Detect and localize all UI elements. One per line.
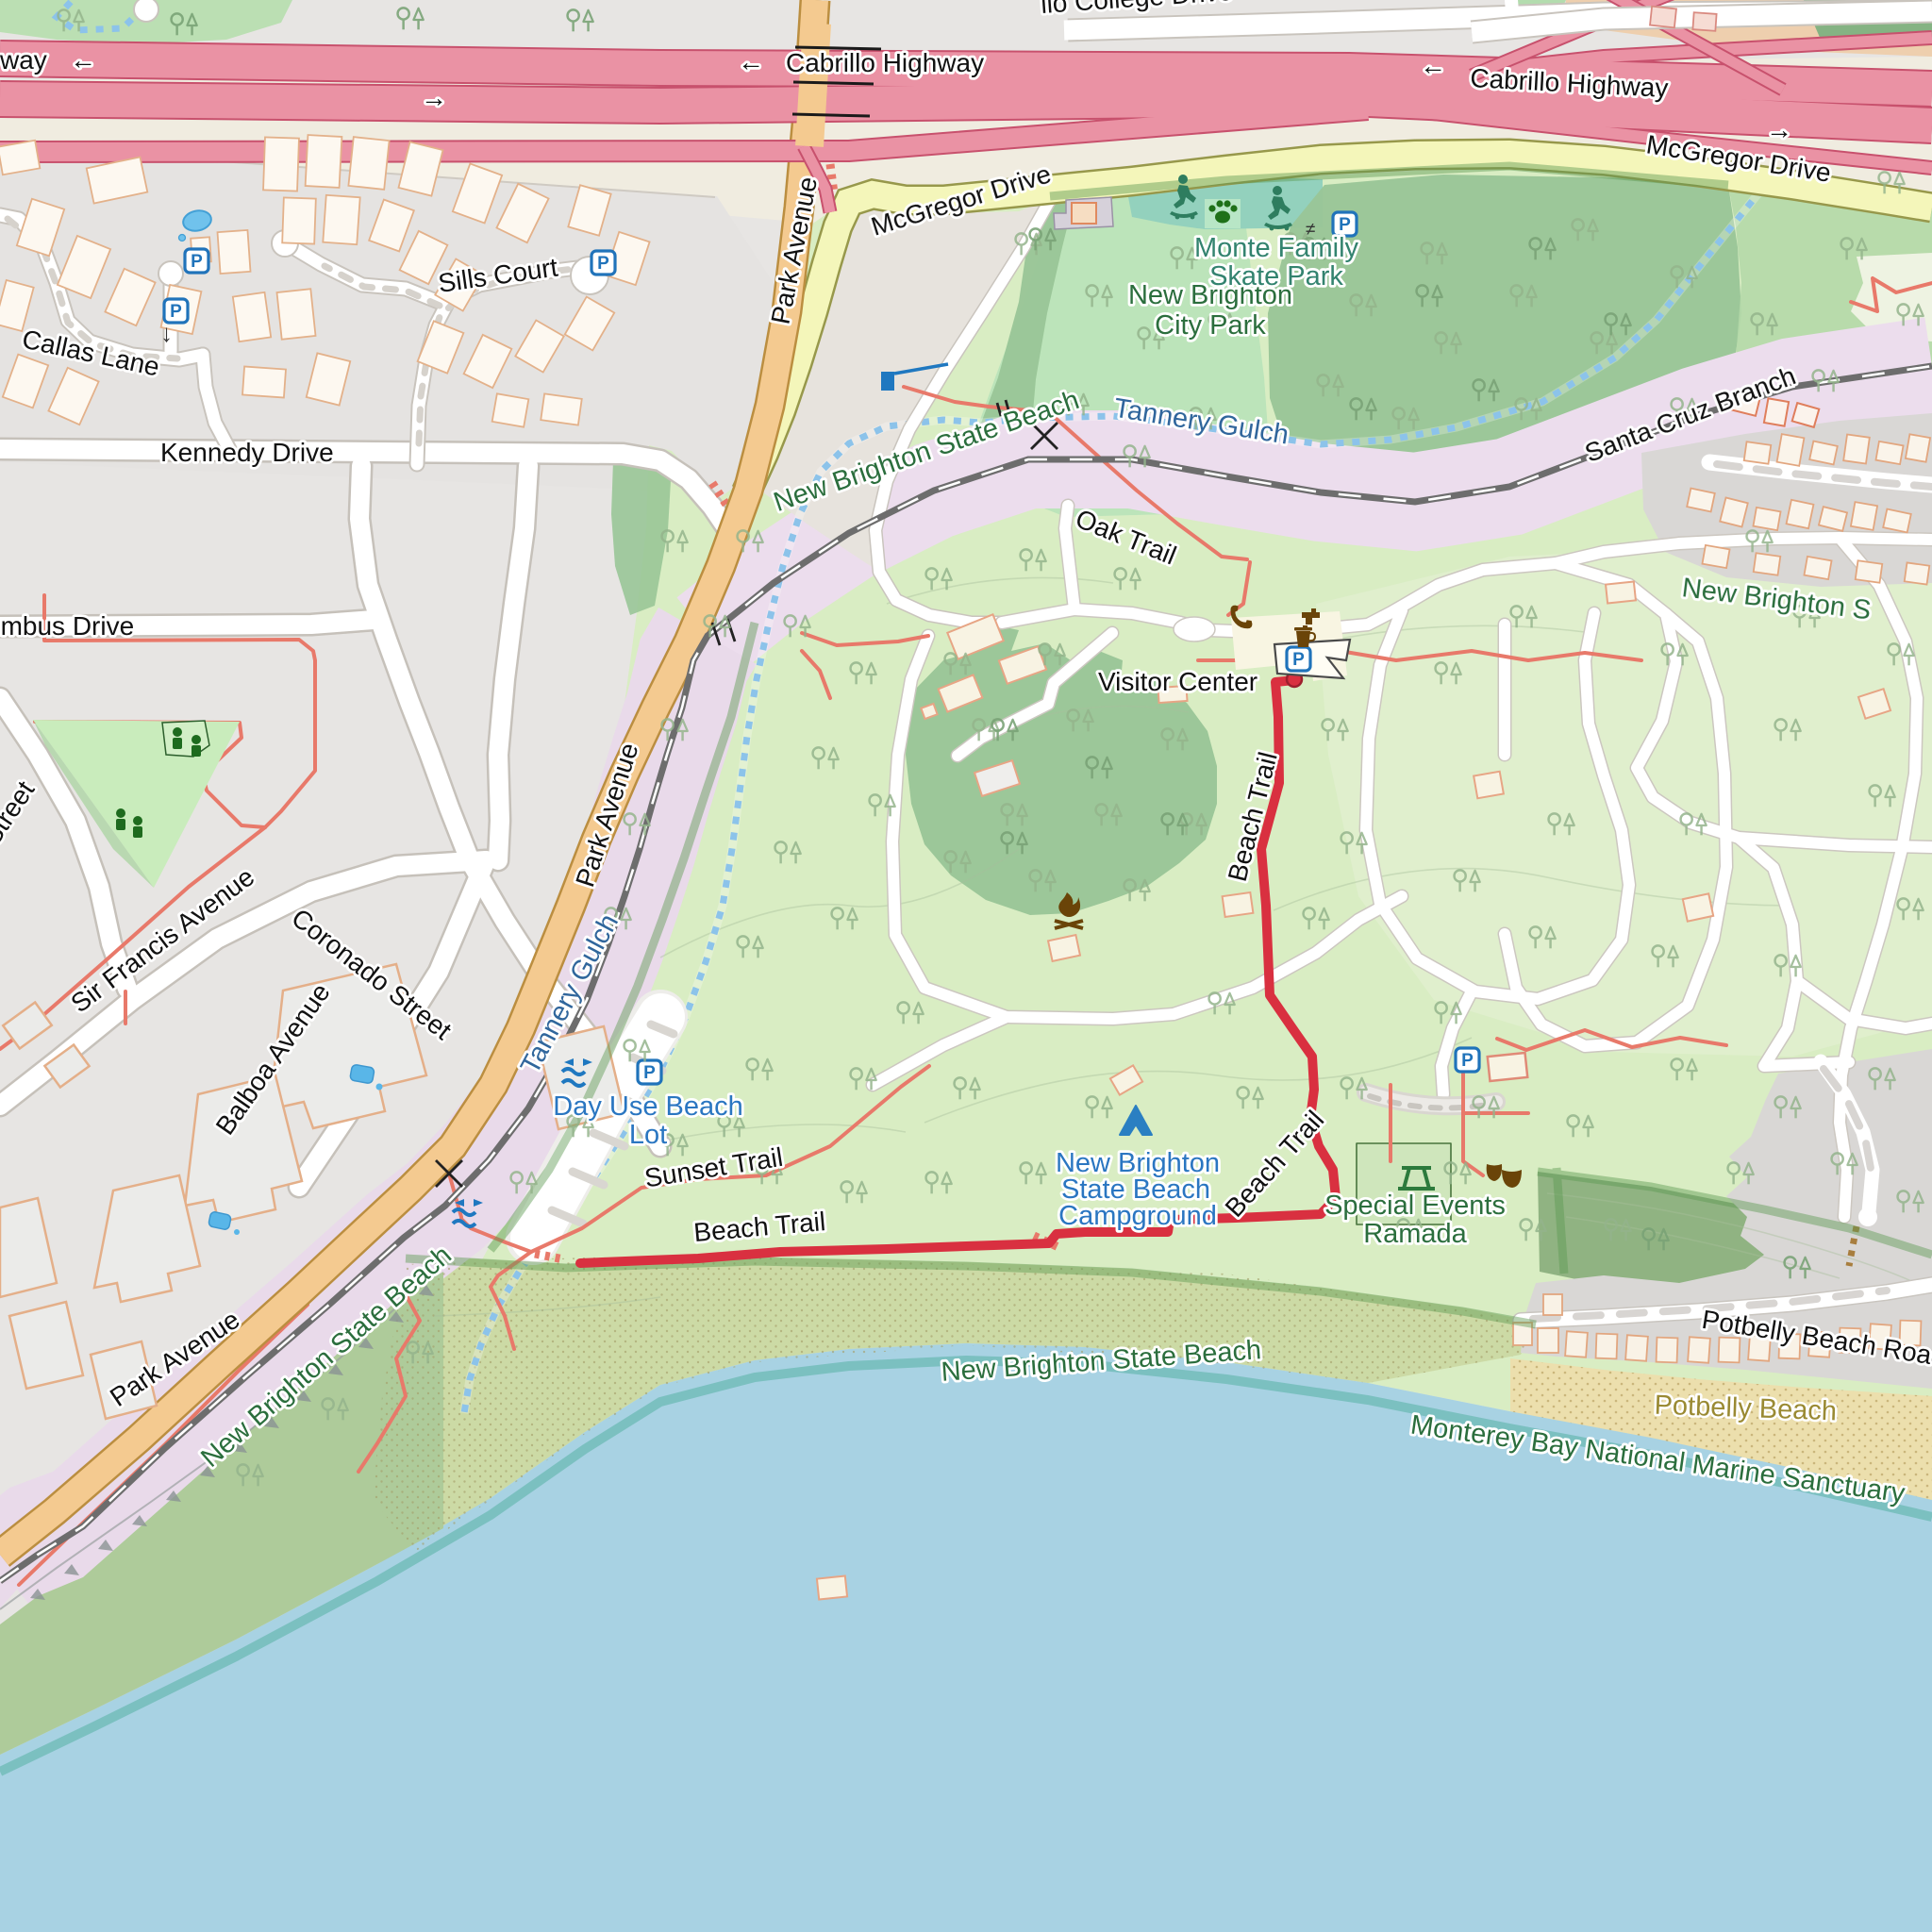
svg-text:←: ←: [70, 45, 96, 75]
svg-text:→: →: [1766, 115, 1792, 144]
svg-text:P: P: [597, 254, 609, 274]
svg-text:Columbus Drive: Columbus Drive: [0, 611, 134, 641]
svg-text:P: P: [1292, 650, 1305, 670]
svg-text:Monte Family: Monte Family: [1194, 233, 1359, 263]
svg-text:Lot: Lot: [629, 1120, 667, 1150]
svg-text:Campground: Campground: [1058, 1201, 1217, 1231]
svg-text:P: P: [643, 1063, 656, 1083]
svg-text:Ramada: Ramada: [1363, 1219, 1467, 1249]
svg-text:way: way: [0, 45, 47, 75]
svg-text:Potbelly Beach: Potbelly Beach: [1654, 1391, 1837, 1427]
svg-text:P: P: [1339, 215, 1351, 235]
svg-text:Cabrillo Highway: Cabrillo Highway: [786, 48, 984, 77]
svg-text:→: →: [421, 83, 447, 112]
svg-text:←: ←: [738, 47, 764, 76]
svg-text:P: P: [191, 252, 203, 272]
svg-text:↓: ↓: [160, 319, 173, 347]
svg-text:Kennedy Drive: Kennedy Drive: [160, 438, 334, 467]
svg-text:Visitor Center: Visitor Center: [1098, 667, 1257, 696]
svg-text:Day Use Beach: Day Use Beach: [553, 1091, 743, 1122]
svg-text:City Park: City Park: [1155, 310, 1266, 341]
svg-text:P: P: [1461, 1051, 1474, 1071]
svg-text:Skate Park: Skate Park: [1209, 261, 1343, 291]
svg-text:Special Events: Special Events: [1324, 1191, 1506, 1221]
svg-text:←: ←: [1420, 51, 1446, 80]
